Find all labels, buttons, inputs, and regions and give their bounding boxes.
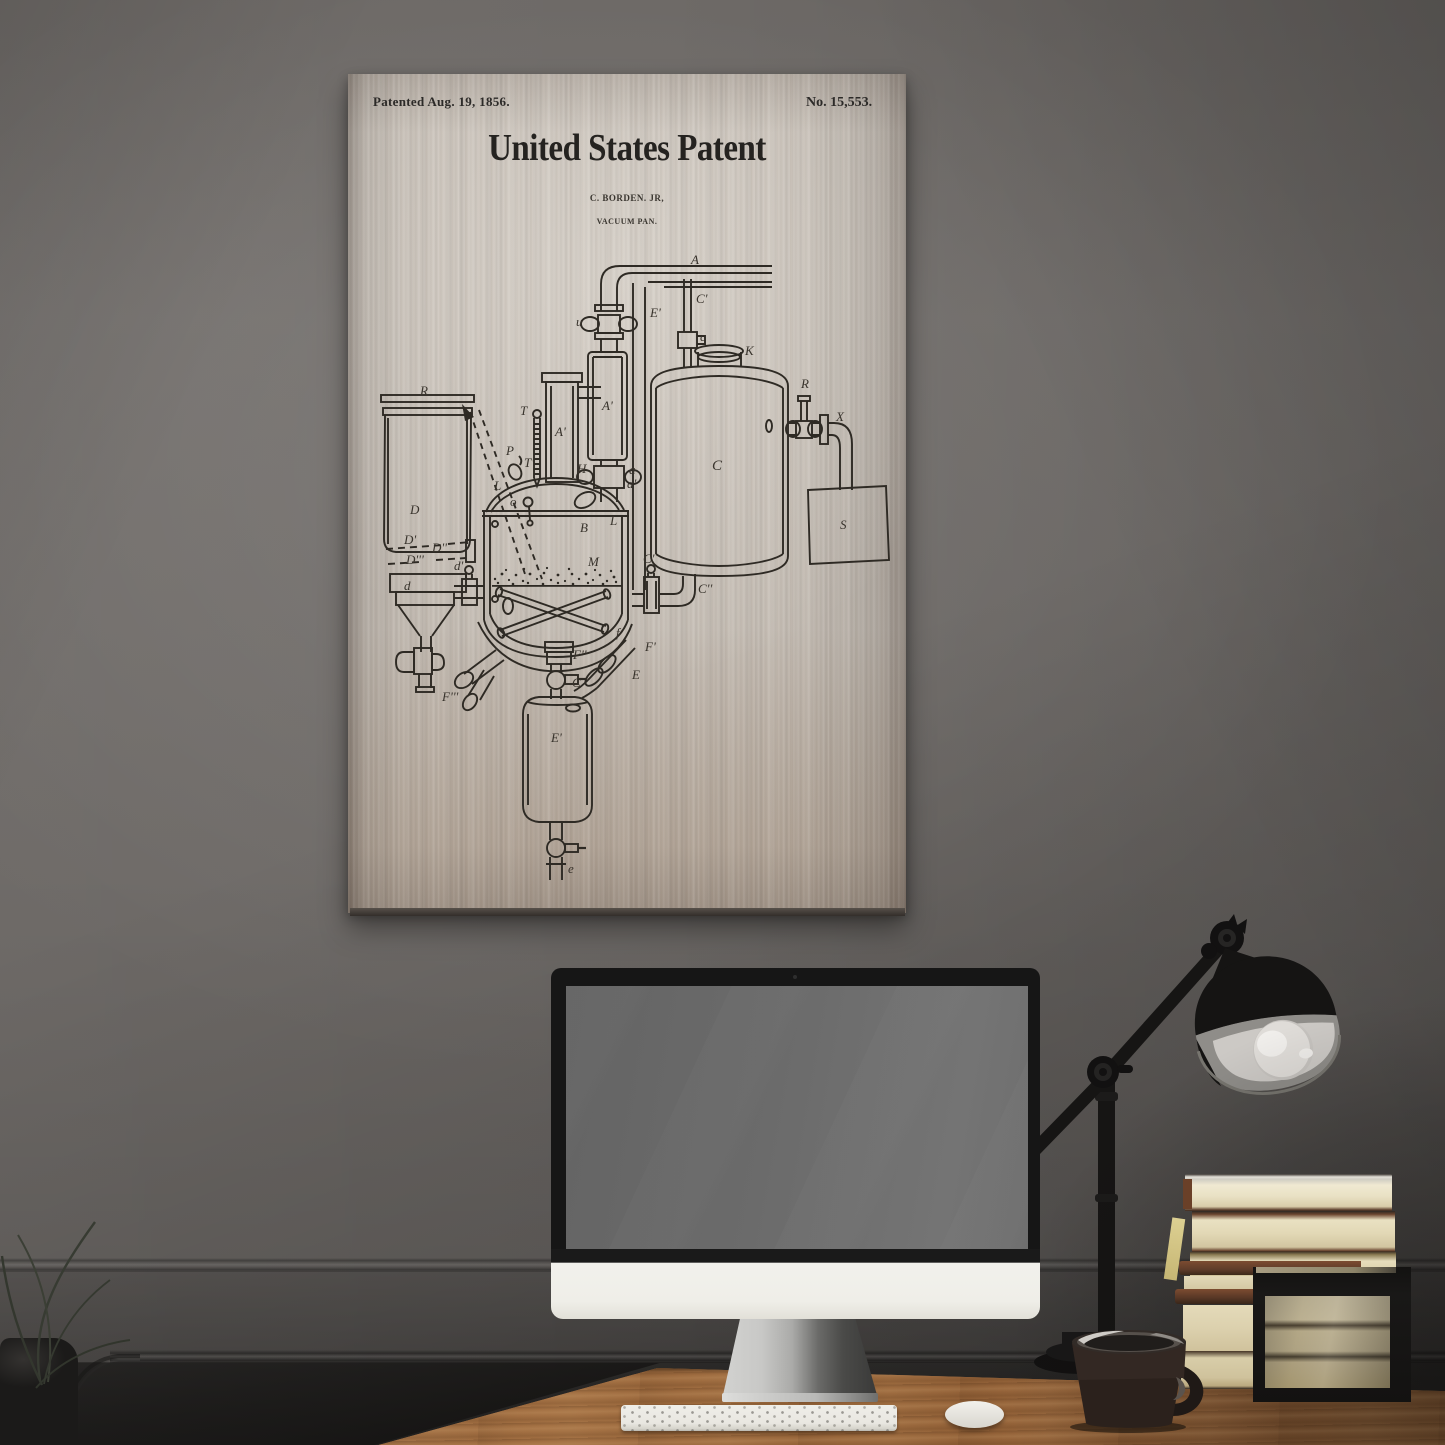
svg-text:P: P [505,443,514,458]
svg-text:S: S [840,517,847,532]
svg-text:c: c [700,329,706,344]
svg-text:F': F' [644,639,656,654]
svg-text:D: D [409,502,420,517]
svg-text:R: R [419,383,428,398]
svg-text:E': E' [649,305,661,320]
svg-text:H: H [576,461,587,476]
svg-text:E: E [631,667,640,682]
svg-text:F''': F''' [441,689,459,704]
svg-text:E': E' [550,730,562,745]
svg-text:d': d' [454,558,464,573]
svg-text:X: X [835,409,845,424]
svg-text:A: A [690,252,699,267]
svg-text:C'': C'' [698,581,712,596]
svg-text:T': T' [524,455,534,470]
svg-text:R: R [800,376,809,391]
svg-text:e: e [568,861,574,876]
svg-text:C': C' [643,551,655,566]
svg-text:D': D' [403,532,416,547]
svg-text:o: o [510,494,517,509]
svg-text:u: u [576,314,583,329]
svg-text:C': C' [696,291,708,306]
svg-text:a': a' [627,476,637,491]
svg-text:K: K [744,343,755,358]
svg-text:T: T [520,403,528,418]
svg-text:L: L [609,513,617,528]
svg-text:d: d [404,578,411,593]
svg-text:A': A' [554,424,566,439]
svg-text:C: C [712,458,723,474]
svg-text:F'': F'' [572,647,587,662]
svg-text:D''': D''' [405,552,424,567]
svg-text:a: a [629,462,636,477]
svg-text:B: B [580,520,588,535]
svg-text:C: C [572,675,581,690]
svg-text:D'': D'' [431,540,447,555]
svg-text:L: L [493,478,501,493]
svg-text:M: M [587,554,600,569]
svg-text:A': A' [601,398,613,413]
